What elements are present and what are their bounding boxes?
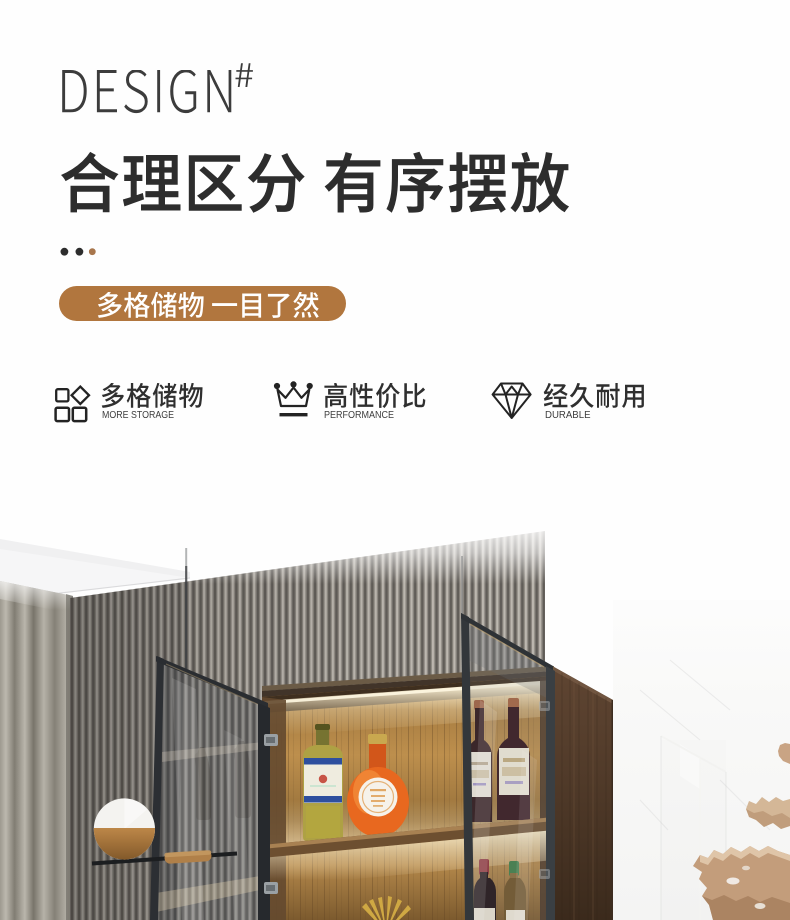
svg-text:DURABLE: DURABLE <box>545 410 591 421</box>
svg-text:MORE STORAGE: MORE STORAGE <box>102 410 174 421</box>
svg-text:PERFORMANCE: PERFORMANCE <box>324 410 394 421</box>
